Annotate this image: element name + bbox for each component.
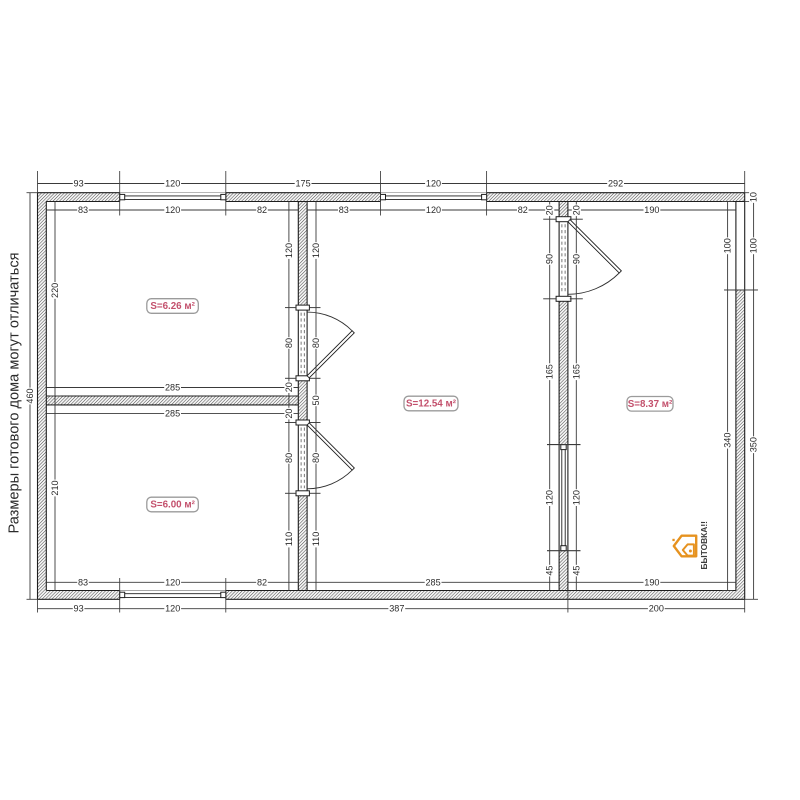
svg-text:80: 80 [284,453,294,463]
svg-text:120: 120 [545,490,555,505]
svg-text:93: 93 [74,179,84,189]
svg-text:S=8.37 м²: S=8.37 м² [628,399,673,410]
svg-text:83: 83 [339,205,349,215]
svg-text:387: 387 [389,604,404,614]
svg-text:120: 120 [311,243,321,258]
svg-text:90: 90 [545,254,555,264]
svg-text:50: 50 [311,395,321,405]
svg-text:210: 210 [50,480,60,495]
svg-text:20: 20 [284,382,294,392]
svg-text:20: 20 [571,205,581,215]
svg-text:165: 165 [545,364,555,379]
svg-text:190: 190 [644,577,659,587]
svg-text:80: 80 [311,453,321,463]
svg-text:285: 285 [165,409,180,419]
svg-text:83: 83 [78,577,88,587]
svg-text:285: 285 [165,383,180,393]
svg-text:120: 120 [165,179,180,189]
svg-text:110: 110 [311,532,321,547]
svg-text:90: 90 [571,254,581,264]
svg-text:93: 93 [74,604,84,614]
svg-text:120: 120 [165,604,180,614]
svg-text:Размеры готового дома могут от: Размеры готового дома могут отличаться [7,252,23,533]
svg-text:20: 20 [284,409,294,419]
svg-text:83: 83 [78,205,88,215]
svg-text:110: 110 [284,532,294,547]
svg-text:120: 120 [165,577,180,587]
svg-text:120: 120 [426,179,441,189]
svg-text:220: 220 [50,283,60,298]
svg-text:100: 100 [723,238,733,253]
svg-text:S=6.26 м²: S=6.26 м² [150,301,195,312]
svg-text:340: 340 [723,433,733,448]
svg-text:10: 10 [749,192,759,202]
svg-text:292: 292 [608,179,623,189]
svg-text:165: 165 [571,364,581,379]
svg-text:82: 82 [257,577,267,587]
svg-text:45: 45 [545,566,555,576]
svg-text:100: 100 [749,238,759,253]
svg-text:80: 80 [311,338,321,348]
svg-text:190: 190 [644,205,659,215]
svg-text:285: 285 [426,577,441,587]
svg-text:80: 80 [284,338,294,348]
svg-text:20: 20 [545,205,555,215]
svg-text:460: 460 [25,388,35,403]
svg-text:S=12.54 м²: S=12.54 м² [406,399,457,410]
svg-text:82: 82 [518,205,528,215]
svg-text:БЫТОВКА!!: БЫТОВКА!! [699,521,709,569]
svg-text:350: 350 [749,437,759,452]
svg-text:175: 175 [296,179,311,189]
svg-text:200: 200 [649,604,664,614]
svg-text:82: 82 [257,205,267,215]
svg-text:120: 120 [284,243,294,258]
svg-text:S=6.00 м²: S=6.00 м² [150,500,195,511]
svg-text:45: 45 [571,566,581,576]
svg-text:120: 120 [165,205,180,215]
svg-text:120: 120 [426,205,441,215]
svg-text:120: 120 [571,490,581,505]
